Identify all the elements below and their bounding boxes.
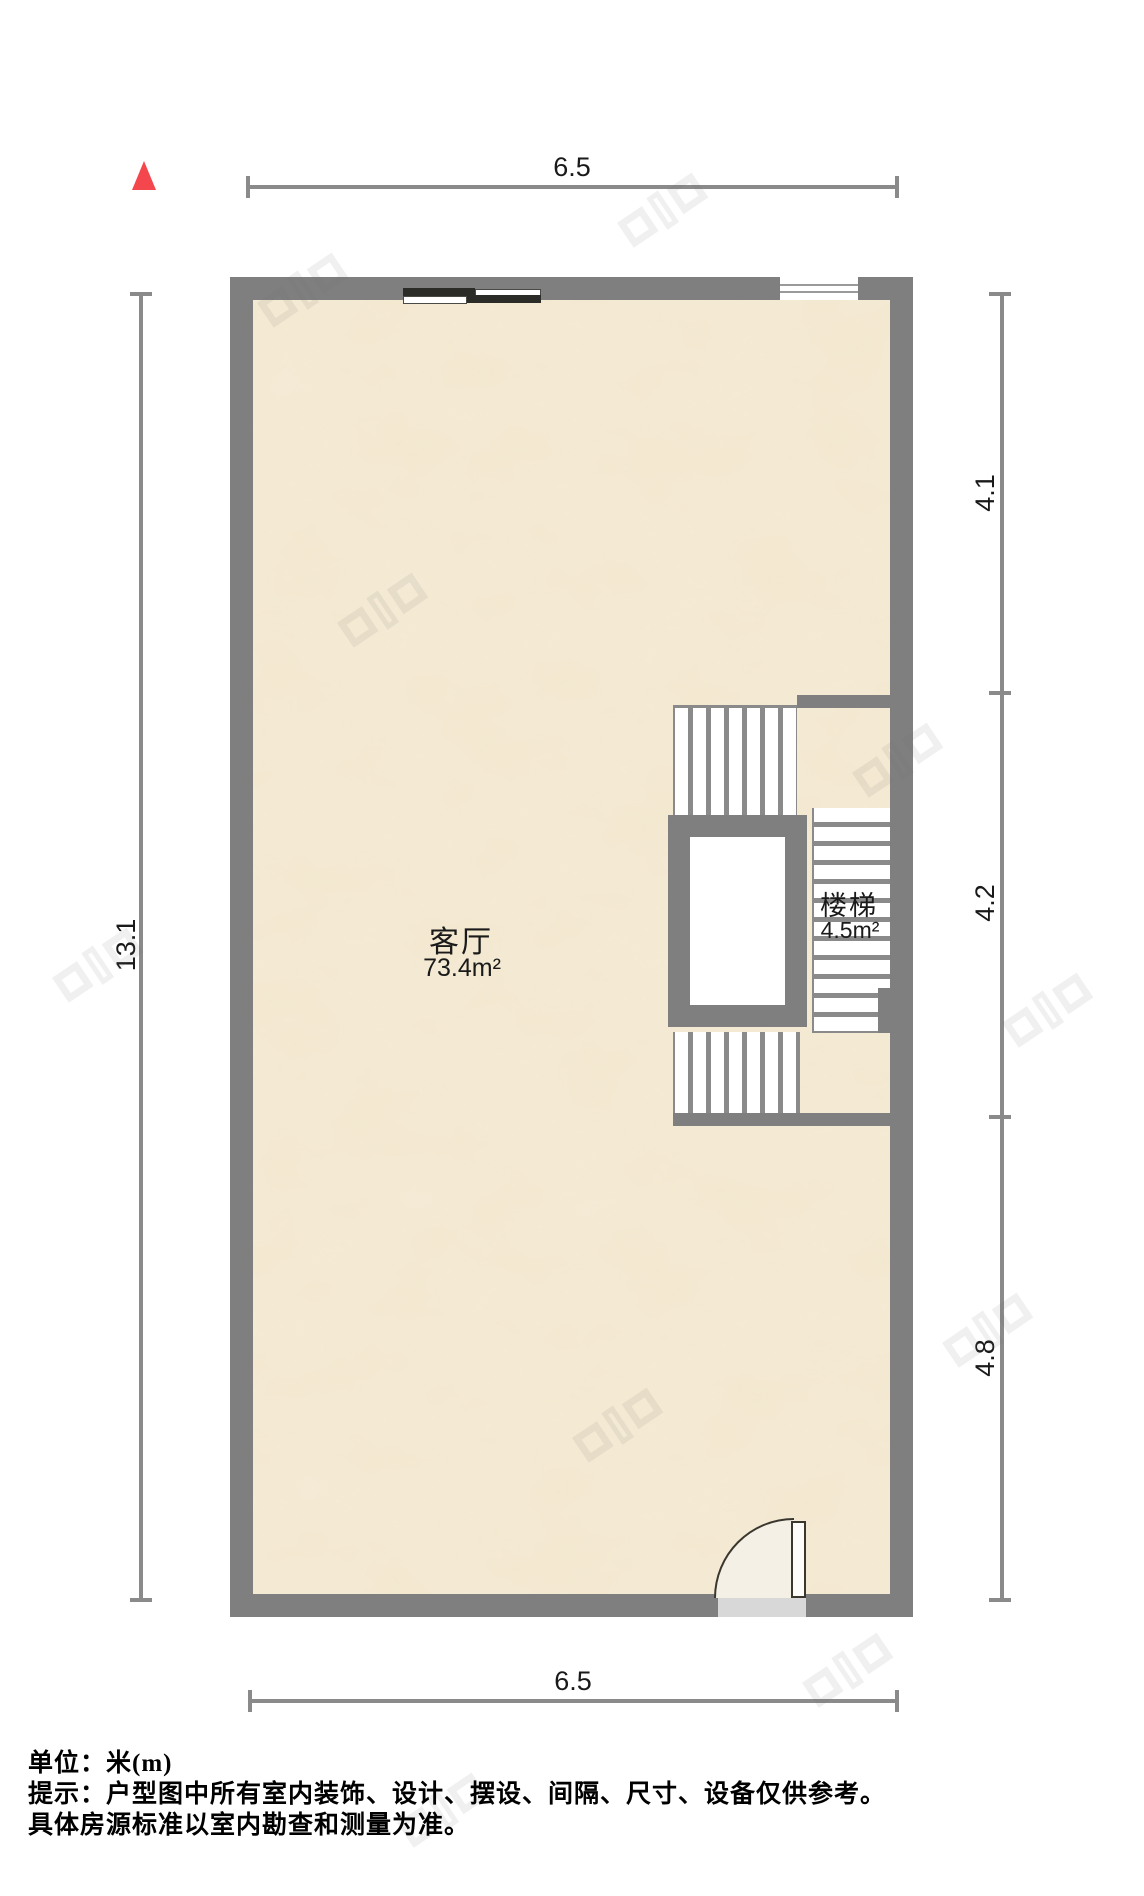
dim-label-right-middle: 4.2 — [965, 843, 1005, 963]
dim-tick — [989, 292, 1011, 296]
window-icon — [780, 277, 858, 300]
stair-bottom-wall — [673, 1113, 890, 1126]
dim-tick — [895, 176, 899, 198]
dim-label-right-upper: 4.1 — [965, 433, 1005, 553]
tv-symbol-icon — [403, 296, 467, 304]
stair-bottom-stub-wall — [878, 988, 890, 1033]
disclaimer-line-2: 具体房源标准以室内勘查和测量为准。 — [28, 1810, 1118, 1841]
floor-plan-page: 客厅 73.4m² 楼梯 4.5m² 6.5 6.5 13.1 4.1 4.2 … — [0, 0, 1144, 1896]
dim-tick — [130, 292, 152, 296]
unit-note: 单位：米(m) — [28, 1748, 1118, 1779]
dim-tick — [989, 1598, 1011, 1602]
door-leaf-icon — [791, 1521, 806, 1598]
stairwell-void — [690, 837, 785, 1005]
stair-lower-run-icon — [673, 1032, 800, 1113]
north-arrow-icon — [132, 161, 156, 190]
stair-upper-run-icon — [673, 705, 797, 815]
dim-tick — [895, 1690, 899, 1712]
room-area-living: 73.4m² — [382, 954, 542, 983]
watermark-logo — [934, 1230, 1117, 1380]
dim-tick — [989, 1115, 1011, 1119]
dim-label-top: 6.5 — [532, 152, 612, 183]
dim-tick — [989, 691, 1011, 695]
dim-line-top — [248, 185, 897, 189]
footer-notes: 单位：米(m) 提示：户型图中所有室内装饰、设计、摆设、间隔、尺寸、设备仅供参考… — [28, 1748, 1118, 1841]
dim-line-bottom — [250, 1699, 897, 1703]
dim-label-right-lower: 4.8 — [965, 1298, 1005, 1418]
dim-label-left: 13.1 — [106, 885, 146, 1005]
disclaimer-line-1: 提示：户型图中所有室内装饰、设计、摆设、间隔、尺寸、设备仅供参考。 — [28, 1779, 1118, 1810]
tv-symbol-icon — [467, 295, 541, 303]
tv-symbol-icon — [403, 288, 475, 296]
dim-label-bottom: 6.5 — [533, 1666, 613, 1697]
watermark-logo — [994, 910, 1144, 1060]
dim-tick — [248, 1690, 252, 1712]
stair-top-wall — [797, 695, 890, 708]
dim-tick — [246, 176, 250, 198]
room-area-stairs: 4.5m² — [790, 917, 910, 944]
dim-tick — [130, 1598, 152, 1602]
